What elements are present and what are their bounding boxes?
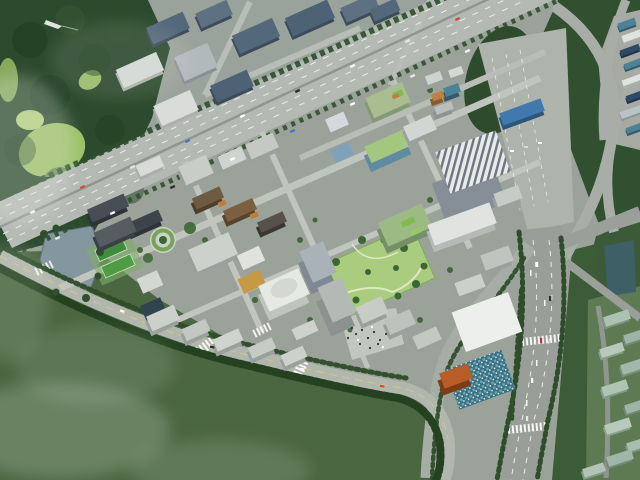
masterplan-figure: [0, 0, 640, 480]
aerial-city-rendering: [0, 0, 640, 480]
